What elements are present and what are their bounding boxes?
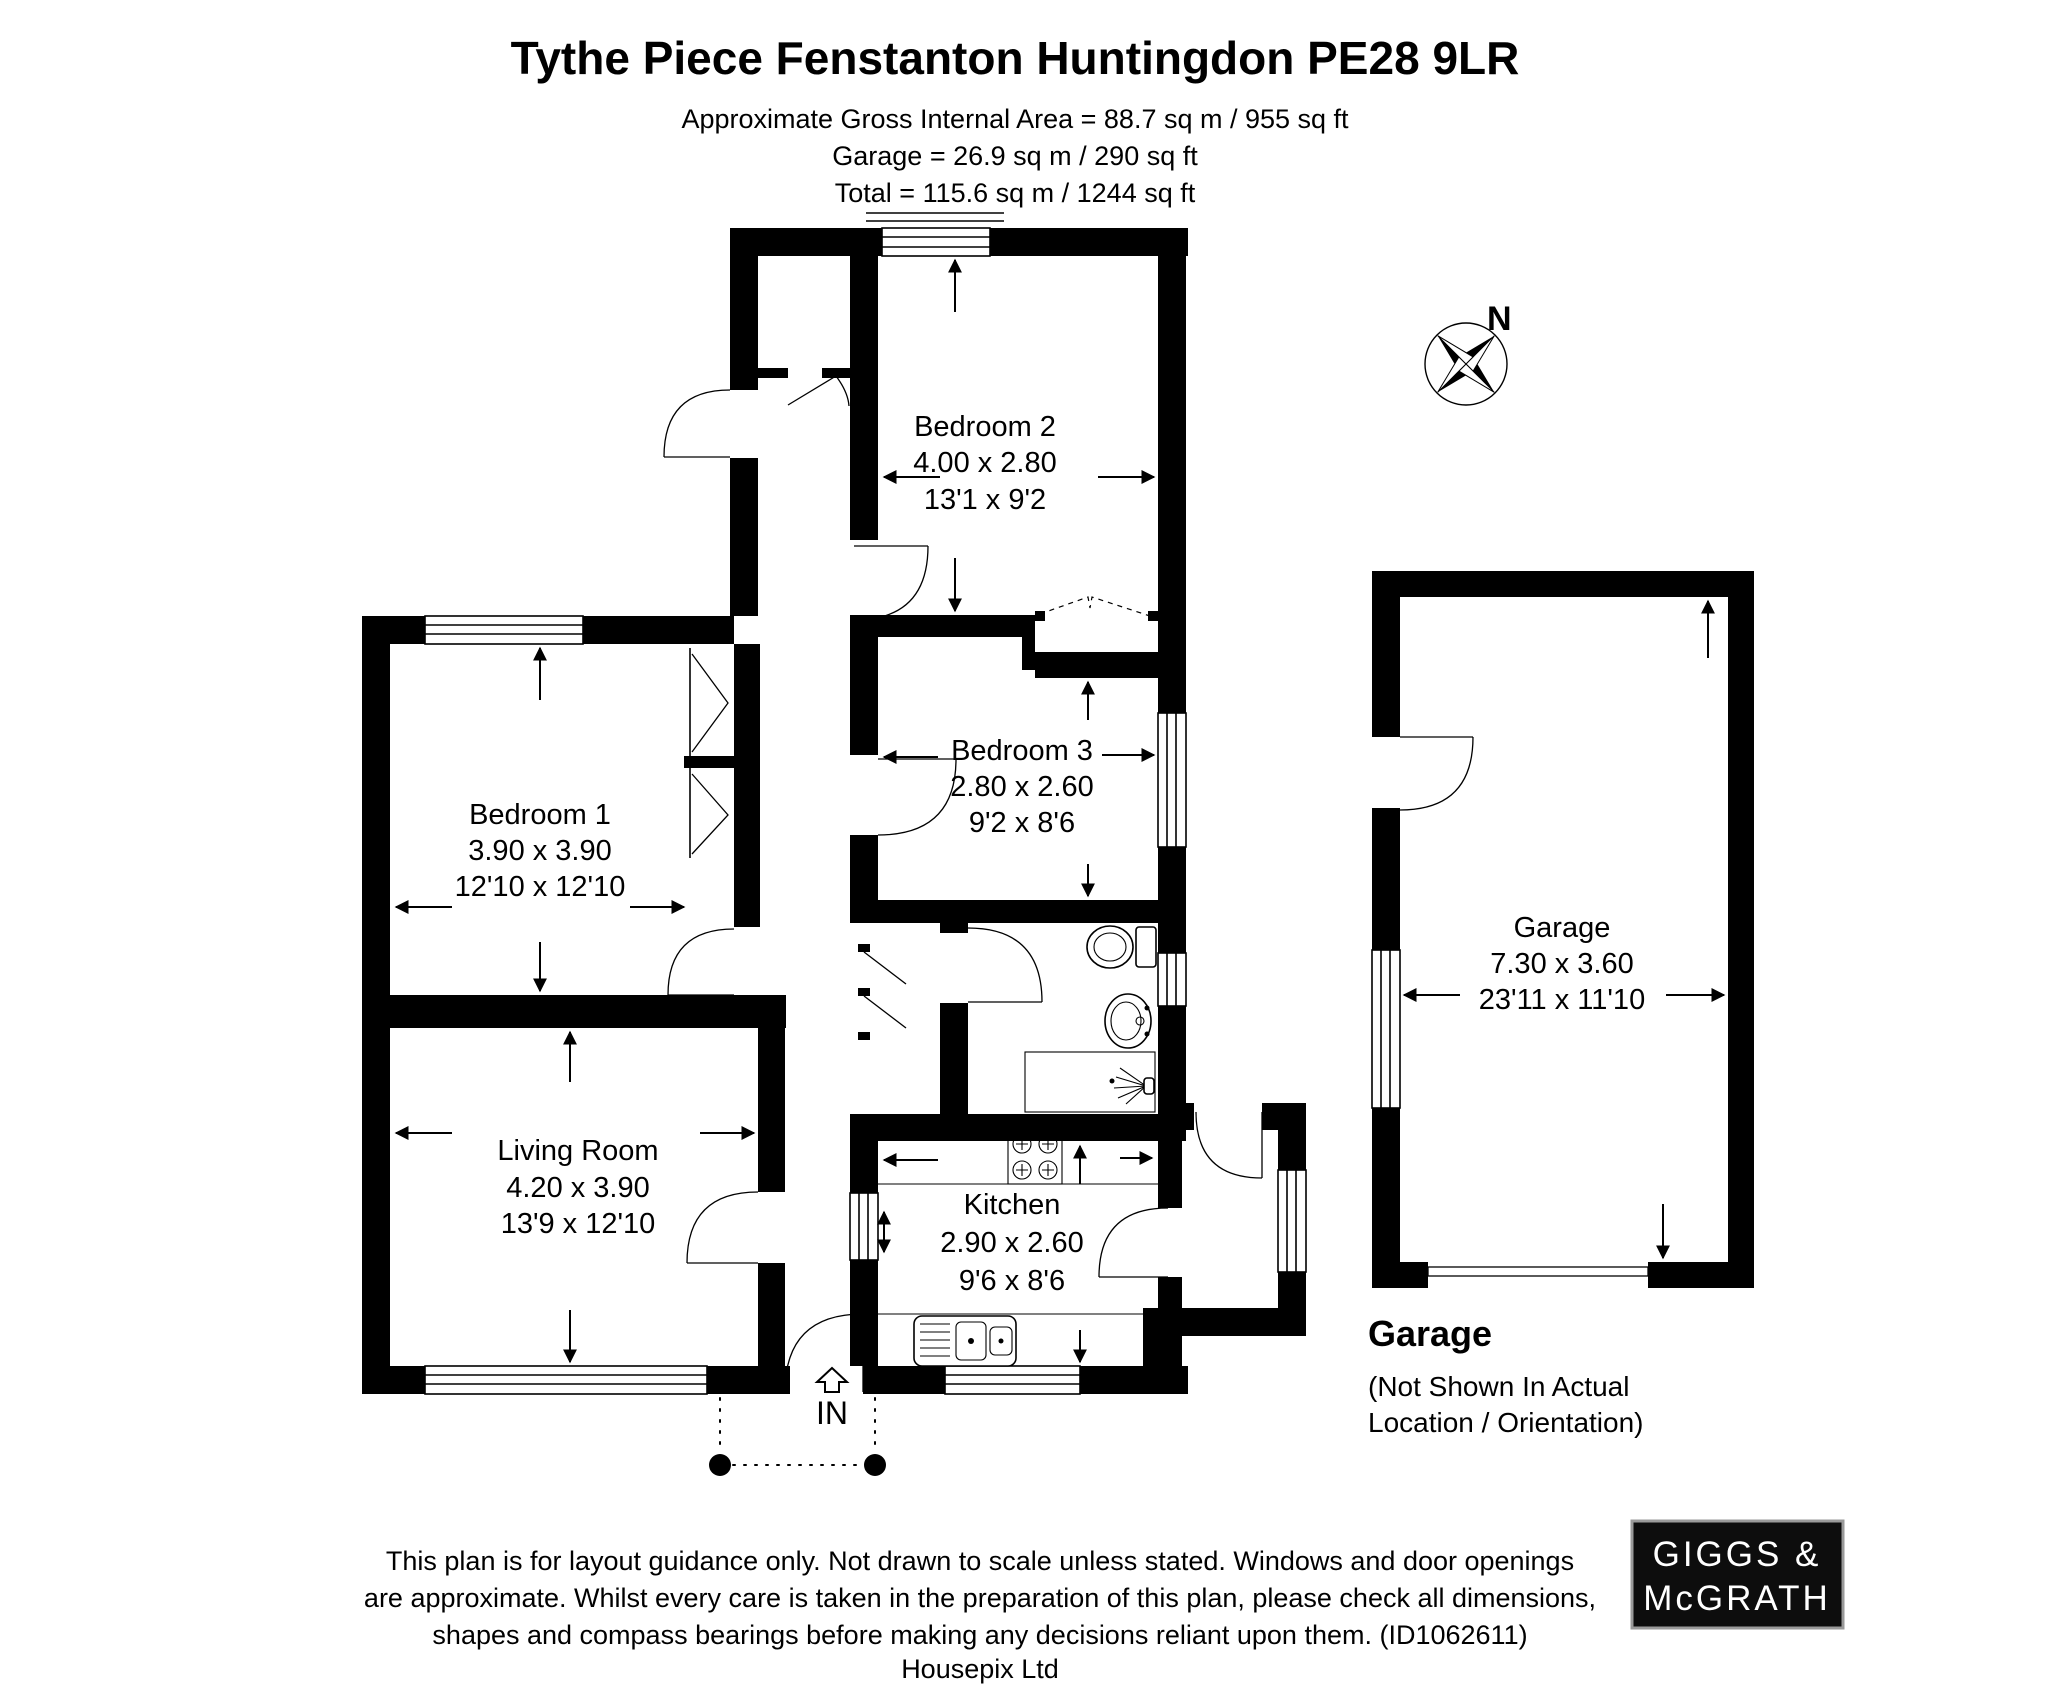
- garage-note-title: Garage: [1368, 1313, 1492, 1354]
- header: Tythe Piece Fenstanton Huntingdon PE28 9…: [511, 32, 1520, 208]
- bedroom2-window: [866, 213, 1004, 256]
- credit-line: Housepix Ltd: [901, 1654, 1059, 1684]
- svg-text:2.80 x 2.60: 2.80 x 2.60: [950, 771, 1094, 803]
- garage-door: [1428, 1267, 1648, 1276]
- living-room-label: Living Room 4.20 x 3.90 13'9 x 12'10: [497, 1135, 658, 1240]
- page-title: Tythe Piece Fenstanton Huntingdon PE28 9…: [511, 32, 1520, 84]
- disclaimer-line1: This plan is for layout guidance only. N…: [386, 1546, 1574, 1576]
- disclaimer-line2: are approximate. Whilst every care is ta…: [364, 1583, 1596, 1613]
- svg-text:9'2 x 8'6: 9'2 x 8'6: [969, 807, 1075, 839]
- svg-text:4.20 x 3.90: 4.20 x 3.90: [506, 1172, 650, 1204]
- bedroom3-window: [1158, 713, 1186, 847]
- svg-text:Bedroom 1: Bedroom 1: [469, 799, 611, 831]
- svg-text:Living Room: Living Room: [497, 1135, 658, 1167]
- logo-line1: GIGGS &: [1653, 1535, 1822, 1574]
- toilet-icon: [1087, 926, 1156, 968]
- garage-area: Garage = 26.9 sq m / 290 sq ft: [832, 141, 1198, 171]
- entrance-label: IN: [816, 1395, 848, 1431]
- svg-text:2.90 x 2.60: 2.90 x 2.60: [940, 1227, 1084, 1259]
- garage-label: Garage 7.30 x 3.60 23'11 x 11'10: [1479, 912, 1645, 1016]
- bedroom3-label: Bedroom 3 2.80 x 2.60 9'2 x 8'6: [950, 735, 1094, 839]
- svg-text:7.30 x 3.60: 7.30 x 3.60: [1490, 948, 1634, 980]
- bedroom2-label: Bedroom 2 4.00 x 2.80 13'1 x 9'2: [913, 411, 1057, 516]
- bathroom-fixtures: [1025, 926, 1156, 1112]
- garage-note-line2: Location / Orientation): [1368, 1407, 1644, 1438]
- bedroom1-window: [425, 616, 583, 644]
- kitchen-side-window: [850, 1193, 878, 1260]
- boundary-post-right: [864, 1454, 886, 1476]
- svg-text:3.90 x 3.90: 3.90 x 3.90: [468, 835, 612, 867]
- garage-note: Garage (Not Shown In Actual Location / O…: [1368, 1313, 1644, 1438]
- garage-window: [1372, 950, 1400, 1108]
- svg-text:Garage: Garage: [1514, 912, 1611, 944]
- garage-note-line1: (Not Shown In Actual: [1368, 1371, 1629, 1402]
- room-labels: Bedroom 2 4.00 x 2.80 13'1 x 9'2 Bedroom…: [455, 411, 1646, 1297]
- agent-logo: GIGGS & McGRATH: [1632, 1521, 1843, 1628]
- floorplan-page: Tythe Piece Fenstanton Huntingdon PE28 9…: [0, 0, 2048, 1686]
- compass-rose-icon: N: [1425, 300, 1512, 405]
- compass-north-label: N: [1487, 300, 1512, 338]
- kitchen-window: [945, 1366, 1080, 1394]
- bathroom-window: [1158, 953, 1186, 1006]
- svg-text:Bedroom 2: Bedroom 2: [914, 411, 1056, 443]
- basin-icon: [1105, 994, 1151, 1048]
- svg-text:23'11 x 11'10: 23'11 x 11'10: [1479, 984, 1645, 1016]
- total-area: Total = 115.6 sq m / 1244 sq ft: [835, 178, 1196, 208]
- sink-icon: [914, 1316, 1016, 1366]
- svg-text:Bedroom 3: Bedroom 3: [951, 735, 1093, 767]
- kitchen-label: Kitchen 2.90 x 2.60 9'6 x 8'6: [940, 1189, 1084, 1297]
- svg-text:Kitchen: Kitchen: [964, 1189, 1061, 1221]
- living-room-window: [425, 1366, 707, 1394]
- boundary-post-left: [709, 1454, 731, 1476]
- entrance-arrow-icon: [817, 1368, 847, 1392]
- bedroom1-label: Bedroom 1 3.90 x 3.90 12'10 x 12'10: [455, 799, 626, 903]
- svg-text:12'10 x 12'10: 12'10 x 12'10: [455, 871, 626, 903]
- svg-text:4.00 x 2.80: 4.00 x 2.80: [913, 447, 1057, 479]
- logo-line2: McGRATH: [1643, 1579, 1831, 1618]
- shower-icon: [1025, 1052, 1155, 1112]
- gross-internal-area: Approximate Gross Internal Area = 88.7 s…: [681, 104, 1349, 134]
- disclaimer: This plan is for layout guidance only. N…: [364, 1546, 1596, 1684]
- floor-plan-svg: Tythe Piece Fenstanton Huntingdon PE28 9…: [0, 0, 2048, 1686]
- svg-text:13'9 x 12'10: 13'9 x 12'10: [501, 1208, 656, 1240]
- svg-text:9'6 x 8'6: 9'6 x 8'6: [959, 1265, 1065, 1297]
- porch-window: [1278, 1170, 1306, 1272]
- svg-text:13'1 x 9'2: 13'1 x 9'2: [924, 484, 1046, 516]
- disclaimer-line3: shapes and compass bearings before makin…: [432, 1620, 1527, 1650]
